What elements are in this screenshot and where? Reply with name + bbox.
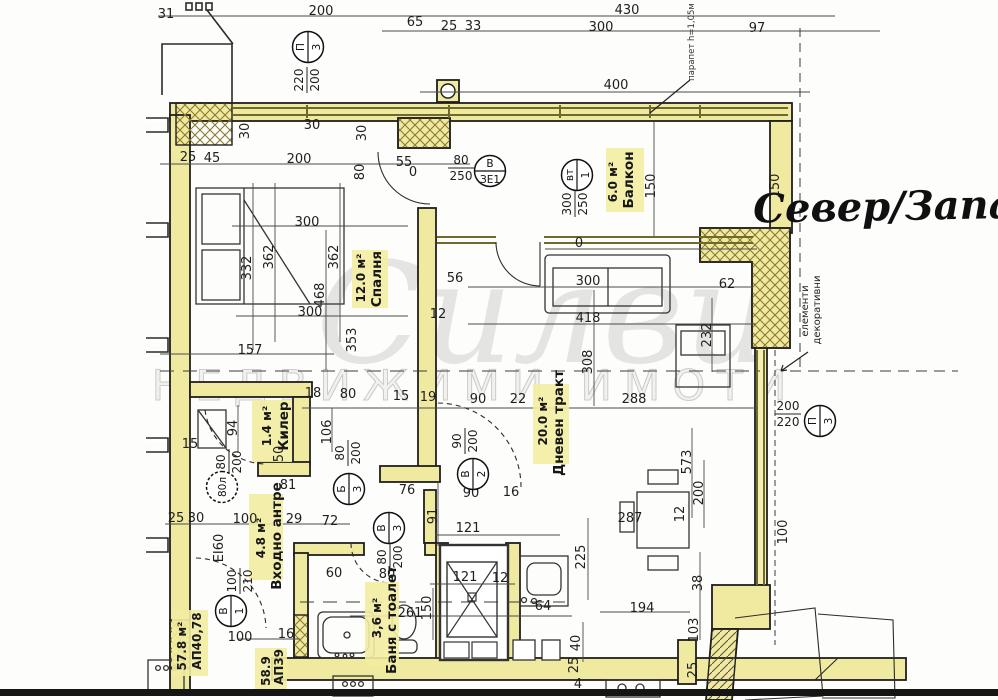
fraction-denominator: 200	[349, 442, 363, 465]
dimension-label: 91	[426, 508, 441, 525]
door-window-symbol: ВЗЕ1	[475, 156, 506, 187]
door-window-symbol: Б3	[334, 474, 365, 505]
dimension-label: 81	[280, 478, 297, 493]
room-label-bedroom: Спалня	[369, 251, 385, 307]
dimension-label: 150	[644, 174, 659, 199]
fraction-numerator: 80	[453, 153, 468, 167]
dimension-label: 232	[700, 323, 715, 348]
dimension-label: 25	[686, 662, 701, 679]
dimension-label: 121	[453, 570, 478, 585]
floor-plan-drawing: Силви НЕДВИЖИМИ ИМОТИ	[0, 0, 998, 700]
dimension-label: 362	[262, 245, 277, 270]
room-area-closet: 1.4 м²	[260, 406, 274, 447]
dimension-label: 200	[287, 152, 312, 167]
dimension-label: 300	[589, 20, 614, 35]
fraction-denominator: 250	[576, 193, 590, 216]
dimension-fraction: 200220	[775, 399, 801, 429]
floor-plan-scan: Силви НЕДВИЖИМИ ИМОТИ	[0, 0, 998, 700]
door-window-symbol: П3	[293, 32, 324, 63]
dimension-label: 72	[322, 514, 339, 529]
fraction-numerator: 300	[560, 193, 574, 216]
symbol-number: 3	[392, 525, 404, 532]
dimension-label: 56	[447, 271, 464, 286]
dimension-label: 300	[576, 274, 601, 289]
door-window-symbol: В2	[458, 459, 489, 490]
room-label-balcony: Балкон	[621, 151, 637, 208]
fraction-numerator: 80	[214, 454, 228, 469]
dimension-label: 430	[615, 3, 640, 18]
dimension-label: 33	[465, 19, 482, 34]
symbol-number: ЗЕ1	[480, 174, 500, 186]
dimension-label: 0	[575, 236, 583, 251]
symbol-type: В	[460, 470, 472, 477]
symbol-number: 2	[476, 471, 488, 478]
dimension-label: 65	[407, 15, 424, 30]
symbol-type: П	[295, 43, 307, 51]
dimension-label: 194	[630, 601, 655, 616]
fraction-numerator: 80	[333, 445, 347, 460]
dimension-fraction: 220200	[292, 67, 322, 93]
fraction-numerator: 80	[375, 549, 389, 564]
door-window-symbol: вт1	[562, 160, 593, 191]
symbol-number: 3	[823, 418, 835, 425]
symbol-type: В	[486, 158, 493, 170]
dimension-label: 353	[345, 328, 360, 353]
dimension-label: 287	[618, 511, 643, 526]
fraction-denominator: 210	[241, 570, 255, 593]
fraction-numerator: 220	[292, 69, 306, 92]
dimension-label: 418	[576, 311, 601, 326]
symbol-number: 1	[580, 172, 592, 179]
dimension-label: 16	[503, 485, 520, 500]
dimension-label: 0	[409, 165, 417, 180]
dimension-label: 25	[180, 150, 197, 165]
decorative-elements-note-line1: декоративни	[812, 276, 823, 345]
dimension-fraction: 80200	[333, 440, 363, 466]
symbol-number: 1	[234, 608, 246, 615]
symbol-number: 3	[352, 486, 364, 493]
symbol-type: В	[218, 607, 230, 614]
dimension-label: 200	[309, 4, 334, 19]
fraction-numerator: 100	[225, 570, 239, 593]
dimension-label: 468	[313, 283, 328, 308]
dimension-label: 100	[233, 512, 258, 527]
room-label-living: Дневен тракт	[551, 370, 567, 476]
dimension-label: 40	[569, 635, 584, 652]
fraction-denominator: 200	[466, 430, 480, 453]
room-area-bathroom: 3,6 м²	[370, 598, 384, 639]
fire-rating-label: EI60	[212, 534, 227, 563]
symbol-type: П	[807, 417, 819, 425]
symbol-number: 3	[311, 44, 323, 51]
dimension-label: 19	[420, 390, 437, 405]
dimension-label: 200	[692, 481, 707, 506]
dimension-label: 300	[298, 305, 323, 320]
scan-edge	[0, 689, 998, 696]
fraction-denominator: 200	[308, 69, 322, 92]
dimension-label: 15	[393, 389, 410, 404]
symbol-type: 80л	[217, 477, 229, 497]
dimension-label: 30	[188, 511, 205, 526]
dimension-label: 30	[304, 118, 321, 133]
dimension-label: 80	[353, 164, 368, 181]
dimension-label: 97	[749, 21, 766, 36]
dimension-label: 157	[238, 343, 263, 358]
dimension-label: 225	[574, 545, 589, 570]
dimension-label: 12	[492, 571, 509, 586]
room-label-entry: Входно антре	[269, 482, 285, 590]
dimension-label: 332	[240, 256, 255, 281]
dimension-label: 29	[286, 512, 303, 527]
decorative-elements-note-line2: елементи	[800, 285, 811, 336]
dimension-fraction: 300250	[560, 191, 590, 217]
dimension-label: 362	[327, 245, 342, 270]
dimension-label: 121	[456, 521, 481, 536]
dimension-label: 18	[305, 386, 322, 401]
symbol-type: вт	[564, 169, 576, 181]
room-area-living: 20.0 м²	[536, 397, 550, 446]
dimension-label: 30	[355, 125, 370, 142]
apartment-39-area: 58.9	[259, 656, 273, 686]
dimension-label: 76	[399, 483, 416, 498]
room-area-bedroom: 12.0 м²	[354, 254, 368, 303]
dimension-fraction: 80250	[448, 153, 474, 183]
dimension-label: 25	[441, 19, 458, 34]
dimension-label: 150	[768, 174, 783, 199]
dimension-label: 16	[278, 627, 295, 642]
dimension-label: 12	[673, 506, 688, 523]
dimension-label: 90	[470, 392, 487, 407]
room-label-closet: Килер	[276, 401, 292, 451]
dimension-label: 261	[398, 606, 423, 621]
apartment-40-area: 57.8 м²	[175, 622, 189, 671]
symbol-type: Б	[336, 485, 348, 492]
dimension-label: 62	[719, 277, 736, 292]
fraction-denominator: 200	[230, 451, 244, 474]
dimension-label: 100	[776, 520, 791, 545]
dimension-label: 300	[295, 215, 320, 230]
dimension-label: 400	[604, 78, 629, 93]
room-area-balcony: 6.0 м²	[606, 162, 620, 203]
apartment-40-label: АП40,78	[190, 612, 204, 669]
fraction-numerator: 90	[450, 433, 464, 448]
fraction-denominator: 200	[391, 546, 405, 569]
dimension-label: 25	[567, 657, 582, 674]
door-window-symbol: П3	[805, 406, 836, 437]
fraction-denominator: 250	[450, 169, 473, 183]
dimension-label: 25	[168, 511, 185, 526]
dimension-label: 64	[535, 599, 552, 614]
door-window-symbol: 80л	[207, 472, 238, 503]
dimension-label: 308	[581, 350, 596, 375]
door-window-symbol: В1	[216, 596, 247, 627]
door-window-symbol: В3	[374, 513, 405, 544]
dimension-label: 31	[158, 7, 175, 22]
dimension-label: 22	[510, 392, 527, 407]
dimension-label: 288	[622, 392, 647, 407]
dimension-label: 45	[204, 151, 221, 166]
washing-machine	[198, 410, 226, 448]
dimension-label: 94	[226, 420, 241, 437]
dimension-fraction: 100210	[225, 568, 255, 594]
dimension-label: 50	[272, 446, 287, 463]
fraction-denominator: 220	[777, 415, 800, 429]
door-jambs	[513, 640, 560, 660]
compass-note: Север/Запад	[753, 180, 998, 232]
dimension-label: 30	[238, 123, 253, 140]
dimension-label: 573	[680, 450, 695, 475]
apartment-39-label: АП39	[272, 649, 286, 685]
dimension-fraction: 90200	[450, 428, 480, 454]
dimension-label: 38	[691, 575, 706, 592]
dimension-label: 80	[340, 387, 357, 402]
column-symbol	[441, 84, 455, 98]
dimension-label: 15	[182, 437, 199, 452]
parapet-note: парапет h=1,05м	[687, 3, 697, 81]
dimension-fraction: 80200	[214, 449, 244, 475]
fraction-numerator: 200	[777, 399, 800, 413]
dimension-label: 60	[326, 566, 343, 581]
dimension-label: 106	[320, 420, 335, 445]
dimension-label: 100	[228, 630, 253, 645]
dimension-label: 103	[687, 618, 702, 643]
dimension-label: 12	[430, 307, 447, 322]
symbol-type: В	[376, 524, 388, 531]
